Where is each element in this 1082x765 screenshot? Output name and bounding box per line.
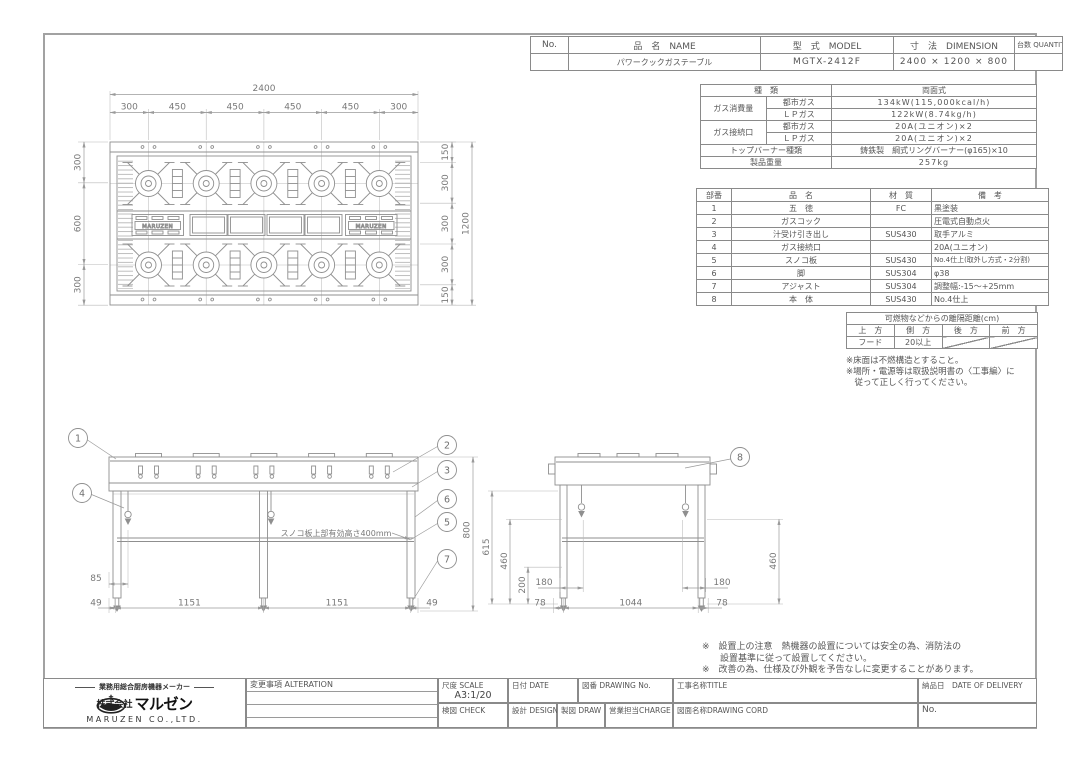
item-model: MGTX-2412F <box>761 54 894 71</box>
parts-col-note: 備 考 <box>932 189 1049 202</box>
spec-weight-value: 257kg <box>832 157 1037 169</box>
svg-text:450: 450 <box>284 103 301 113</box>
design-cell: 設計 DESIGN <box>508 703 557 728</box>
parts-row: 4ガス接続口20A(ユニオン) <box>697 241 1049 254</box>
spec-conn-city-value: 20A(ユニオン)×2 <box>832 121 1037 133</box>
maker-block: 業務用総合厨房機器メーカー 株式会社マルゼン MARUZEN CO.,LTD. <box>43 678 246 728</box>
drawing-sheet: No. 品 名 NAME 型 式 MODEL 寸 法 DIMENSION 台数 … <box>0 0 1082 765</box>
svg-text:1151: 1151 <box>178 599 201 609</box>
no-cell: No. <box>918 703 1037 728</box>
company-name: マルゼン <box>135 693 193 714</box>
header-table: No. 品 名 NAME 型 式 MODEL 寸 法 DIMENSION 台数 … <box>530 36 1063 71</box>
item-name: パワークックガステーブル <box>569 54 761 71</box>
spec-city-label: 都市ガス <box>766 97 832 109</box>
svg-text:1: 1 <box>75 434 81 445</box>
delivery-date-cell: 納品日 DATE OF DELIVERY <box>918 678 1037 703</box>
svg-text:1044: 1044 <box>619 599 642 609</box>
svg-text:5: 5 <box>444 518 450 529</box>
scale-cell: 尺度 SCALE A3:1/20 <box>438 678 508 703</box>
svg-text:300: 300 <box>441 174 451 191</box>
svg-text:300: 300 <box>121 103 138 113</box>
parts-row: 6脚SUS304φ38 <box>697 267 1049 280</box>
svg-text:49: 49 <box>426 599 438 609</box>
clearance-top: フード <box>847 337 895 349</box>
drawing-cord-cell: 図面名称DRAWING CORD <box>673 703 918 728</box>
front-gas-cocks <box>139 466 390 478</box>
dim-side-460-right: 460 <box>769 552 779 569</box>
scale-value: A3:1/20 <box>439 690 507 701</box>
spec-lp-value: 122kW(8.74kg/h) <box>832 109 1037 121</box>
dim-front-height: 800 <box>463 521 473 538</box>
date-cell: 日付 DATE <box>508 678 578 703</box>
svg-text:450: 450 <box>227 103 244 113</box>
svg-text:300: 300 <box>74 276 84 293</box>
dim-plan-depth: 1200 <box>462 212 472 235</box>
svg-text:78: 78 <box>716 599 728 609</box>
header-col-model: 型 式 MODEL <box>761 37 894 54</box>
svg-text:150: 150 <box>441 143 451 160</box>
plan-view: MARUZEN <box>58 80 488 330</box>
parts-row: 3汁受け引き出しSUS430取手アルミ <box>697 228 1049 241</box>
company-name-en: MARUZEN CO.,LTD. <box>86 715 202 724</box>
dim-plan-width: 2400 <box>253 84 276 94</box>
spec-conn-label: ガス接続口 <box>701 121 767 145</box>
dim-side-460-left: 460 <box>500 552 510 569</box>
dim-side-200: 200 <box>518 576 528 593</box>
svg-text:600: 600 <box>74 215 84 232</box>
spec-weight-label: 製品重量 <box>701 157 832 169</box>
front-view: 1 2 3 4 6 5 7 スノコ板上部有効高さ400mm 800 85 49 <box>58 420 483 635</box>
svg-text:300: 300 <box>441 256 451 273</box>
svg-text:3: 3 <box>444 466 450 477</box>
clearance-title: 可燃物などからの離隔距離(cm) <box>847 313 1038 325</box>
spec-city-value: 134kW(115,000kcal/h) <box>832 97 1037 109</box>
svg-text:7: 7 <box>444 555 450 566</box>
dim-side-180-right: 180 <box>713 578 730 588</box>
svg-text:6: 6 <box>444 495 450 506</box>
parts-row: 7アジャストSUS304調整幅:-15〜+25mm <box>697 280 1049 293</box>
side-structure <box>549 454 717 599</box>
header-col-no: No. <box>531 37 569 54</box>
svg-text:1151: 1151 <box>326 599 349 609</box>
plan-drawers <box>132 215 397 236</box>
parts-col-name: 品 名 <box>732 189 871 202</box>
dim-front-85: 85 <box>90 574 101 584</box>
front-balloons: 1 2 3 4 6 5 7 <box>69 429 457 601</box>
item-dimension: 2400 × 1200 × 800 <box>894 54 1015 71</box>
spec-kind-value: 両面式 <box>832 85 1037 97</box>
svg-text:4: 4 <box>79 489 85 500</box>
spec-conn-lp-value: 20A(ユニオン)×2 <box>832 133 1037 145</box>
project-title-cell: 工事名称TITLE <box>673 678 918 703</box>
parts-row: 8本 体SUS430No.4仕上 <box>697 293 1049 306</box>
svg-text:300: 300 <box>390 103 407 113</box>
alteration-row <box>247 705 437 718</box>
dim-side-615: 615 <box>482 538 492 555</box>
alteration-block: 変更事項 ALTERATION <box>246 678 438 728</box>
check-cell: 検図 CHECK <box>438 703 508 728</box>
svg-text:450: 450 <box>342 103 359 113</box>
dim-side-180-left: 180 <box>535 578 552 588</box>
spec-burner-value: 鋳鉄製 綱式リングバーナー(φ165)×10 <box>832 145 1037 157</box>
spec-conn-city-label: 都市ガス <box>766 121 832 133</box>
spec-kind-label: 種 類 <box>701 85 832 97</box>
clearance-rear <box>942 337 990 349</box>
drawing-no-cell: 図番 DRAWING No. <box>578 678 673 703</box>
front-shelf-note: スノコ板上部有効高さ400mm <box>281 528 410 540</box>
svg-text:スノコ板上部有効高さ400mm: スノコ板上部有効高さ400mm <box>281 528 392 538</box>
svg-text:49: 49 <box>90 599 102 609</box>
clearance-side: 20以上 <box>894 337 942 349</box>
svg-text:2: 2 <box>444 441 450 452</box>
item-no <box>531 54 569 71</box>
parts-col-no: 部番 <box>697 189 732 202</box>
svg-text:78: 78 <box>534 599 546 609</box>
alteration-label: 変更事項 ALTERATION <box>247 679 437 692</box>
svg-text:150: 150 <box>441 286 451 303</box>
item-quantity <box>1015 54 1063 71</box>
draw-cell: 製図 DRAW <box>557 703 605 728</box>
charge-cell: 営業担当CHARGE <box>605 703 673 728</box>
alteration-row <box>247 692 437 705</box>
alteration-row <box>247 718 437 729</box>
parts-table: 部番 品 名 材 質 備 考 1五 徳FC黒塗装 2ガスコック圧電式自動点火 3… <box>696 188 1049 306</box>
front-adjustable-feet <box>114 598 414 611</box>
clearance-front <box>990 337 1038 349</box>
front-gas-connections <box>125 491 274 524</box>
spec-lp-label: ＬＰガス <box>766 109 832 121</box>
svg-text:300: 300 <box>74 154 84 171</box>
maruzen-logo-icon <box>96 694 126 714</box>
side-view: 8 615 460 200 460 180 180 78 <box>478 420 798 635</box>
installation-warnings: ※ 設置上の注意 熱機器の設置については安全の為、消防法の 設置基準に従って設置… <box>702 642 979 677</box>
clearance-notes: ※床面は不燃構造とすること。 ※場所・電源等は取扱説明書の〈工事編〉に 従って正… <box>846 356 1015 389</box>
parts-row: 2ガスコック圧電式自動点火 <box>697 215 1049 228</box>
svg-text:300: 300 <box>441 215 451 232</box>
parts-row: 1五 徳FC黒塗装 <box>697 202 1049 215</box>
header-col-quantity: 台数 QUANTITY <box>1015 37 1063 54</box>
svg-text:8: 8 <box>737 453 743 464</box>
parts-row: 5スノコ板SUS430No.4仕上(取外し方式・2分割) <box>697 254 1049 267</box>
clearance-table: 可燃物などからの離隔距離(cm) 上 方 側 方 後 方 前 方 フード 20以… <box>846 312 1038 349</box>
svg-text:450: 450 <box>169 103 186 113</box>
spec-conn-lp-label: ＬＰガス <box>766 133 832 145</box>
side-balloon: 8 <box>685 448 750 469</box>
spec-table: 種 類 両面式 ガス消費量 都市ガス 134kW(115,000kcal/h) … <box>700 84 1037 169</box>
maker-tagline: 業務用総合厨房機器メーカー <box>75 682 214 692</box>
spec-gas-label: ガス消費量 <box>701 97 767 121</box>
header-col-dimension: 寸 法 DIMENSION <box>894 37 1015 54</box>
spec-burner-label: トップバーナー種類 <box>701 145 832 157</box>
maker-logo-row: 株式会社マルゼン <box>96 693 192 714</box>
header-col-name: 品 名 NAME <box>569 37 761 54</box>
parts-col-material: 材 質 <box>871 189 932 202</box>
side-dimensions: 615 460 200 460 180 180 78 1044 78 <box>482 491 783 613</box>
